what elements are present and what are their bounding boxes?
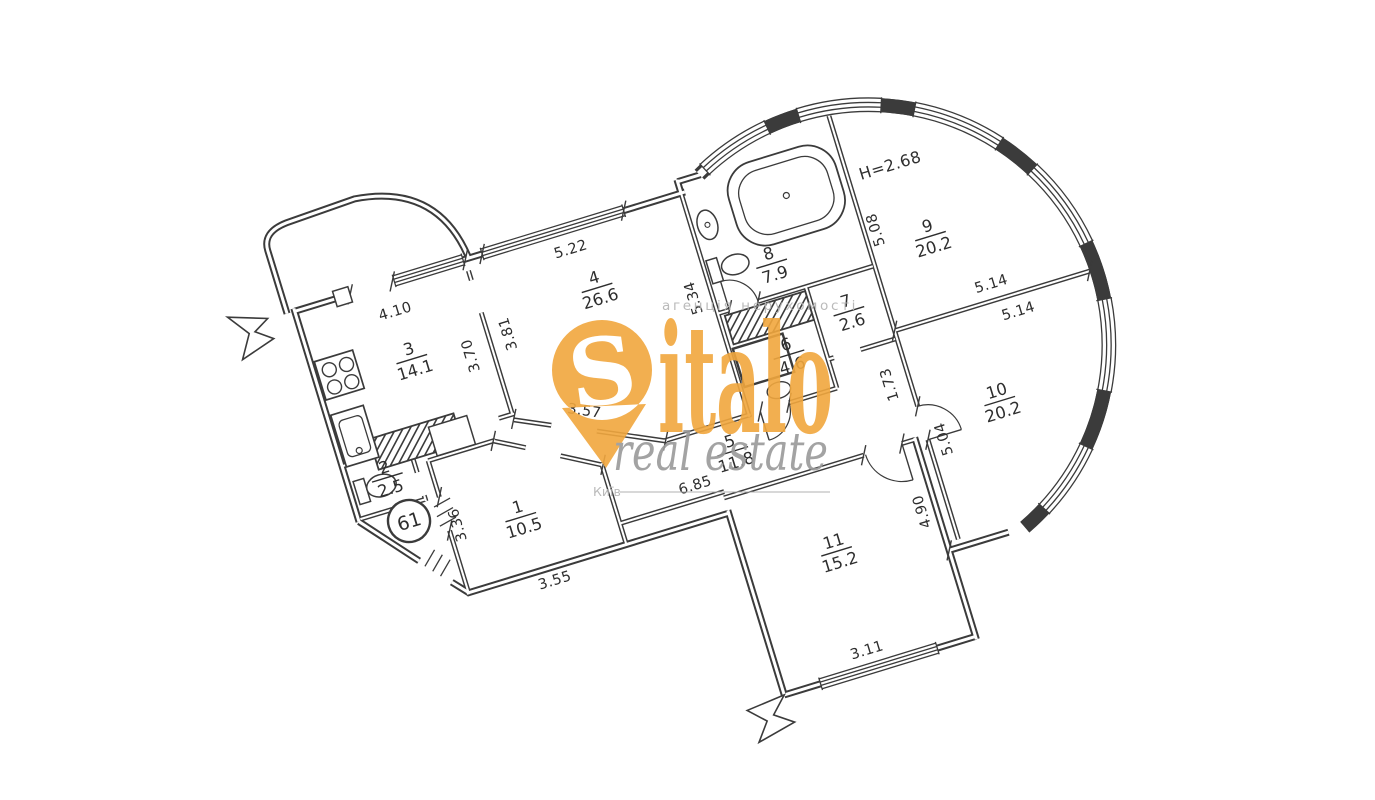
room-area: 26.6	[580, 284, 621, 313]
floor-plan-canvas: 61H=2.68110.522.5314.1426.6511.864.672.6…	[0, 0, 1375, 800]
wall-pier	[1021, 509, 1047, 528]
washbasin-icon	[694, 208, 722, 243]
wall-core	[935, 636, 975, 648]
room-area: 20.2	[914, 233, 955, 262]
balcony-wall	[261, 172, 469, 314]
floor-plan-svg: 61H=2.68110.522.5314.1426.6511.864.672.6…	[0, 0, 1375, 800]
wall-pier	[881, 96, 914, 118]
balcony-wall-core	[261, 172, 469, 314]
door-post	[333, 287, 353, 307]
wall-pier	[999, 137, 1032, 177]
wall-core	[295, 298, 337, 311]
toilet-icon	[719, 251, 752, 278]
wall-core	[784, 683, 822, 695]
dimension-label: 5.14	[973, 272, 1010, 297]
dimension-label: 5.04	[932, 420, 957, 457]
window-erase	[798, 91, 881, 129]
door-hatch	[437, 560, 454, 577]
dimension-label: 5.22	[552, 237, 589, 262]
wall-core	[728, 510, 784, 695]
door-leaf	[902, 444, 913, 480]
dimension-label: 3.81	[496, 315, 521, 352]
room-number: 9	[920, 215, 936, 236]
room-number: 3	[401, 338, 417, 359]
window-erase	[392, 253, 465, 287]
room-number: 1	[510, 497, 526, 518]
door-hatch	[429, 555, 446, 572]
wall-core	[428, 461, 439, 497]
dimension-label: 4.10	[377, 299, 414, 324]
door-hatch	[433, 498, 451, 507]
brand-tagline: real estate	[613, 423, 828, 483]
wall-pier	[1072, 391, 1118, 447]
door-hatch	[421, 550, 438, 567]
agency-caption: агенція нерухомості	[662, 299, 858, 314]
city-caption: Київ	[593, 484, 621, 499]
room-number: 4	[586, 267, 602, 288]
room-number: 8	[761, 243, 777, 264]
window	[482, 209, 624, 252]
door-swing	[866, 444, 913, 491]
dimension-label: 5.14	[1000, 299, 1037, 324]
wall-core	[861, 339, 895, 350]
wall-break-arrow-icon	[746, 694, 797, 743]
room-area: 10.5	[504, 514, 545, 543]
wall-pier	[767, 115, 800, 127]
wall-core	[915, 438, 977, 640]
wall-core	[624, 192, 685, 211]
window	[481, 206, 623, 249]
bathtub-icon	[720, 138, 852, 253]
dimension-label: 3.70	[459, 337, 484, 374]
dimension-label: 1.73	[877, 366, 902, 403]
window-erase	[914, 89, 999, 165]
room-area: 14.1	[395, 356, 436, 385]
wall-break-arrow-icon	[227, 306, 276, 360]
watermark: S italo real estate агенція нерухомості …	[552, 292, 858, 499]
ceiling-height-label: H=2.68	[857, 147, 924, 184]
